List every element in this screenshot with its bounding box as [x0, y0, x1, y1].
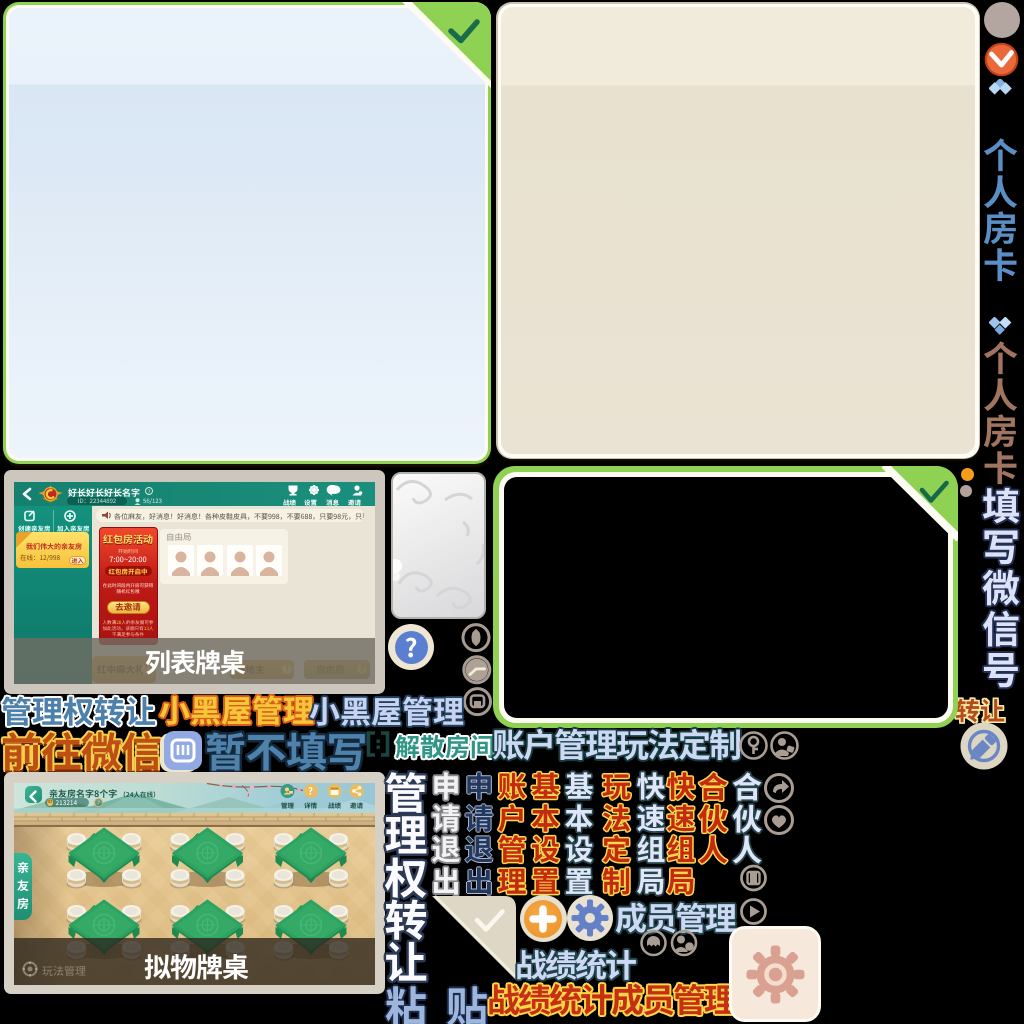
svg-text:?: ? [308, 784, 313, 798]
